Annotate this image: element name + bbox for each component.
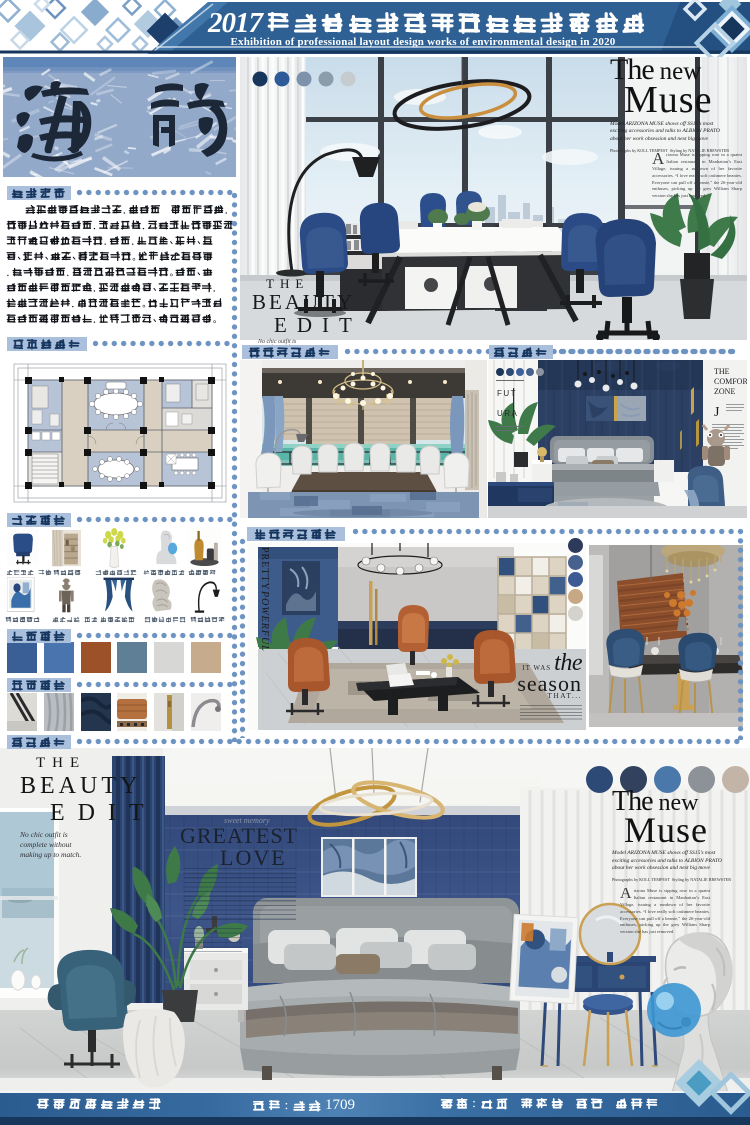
svg-text:THE: THE <box>714 367 730 376</box>
svg-text:URA: URA <box>497 409 518 418</box>
svg-text:ZONE: ZONE <box>714 387 735 396</box>
svg-text:J: J <box>714 405 720 420</box>
svg-text:POWERFUL: POWERFUL <box>259 590 270 652</box>
svg-text:PRETTY: PRETTY <box>259 547 270 591</box>
svg-text:COMFORT: COMFORT <box>714 377 747 386</box>
